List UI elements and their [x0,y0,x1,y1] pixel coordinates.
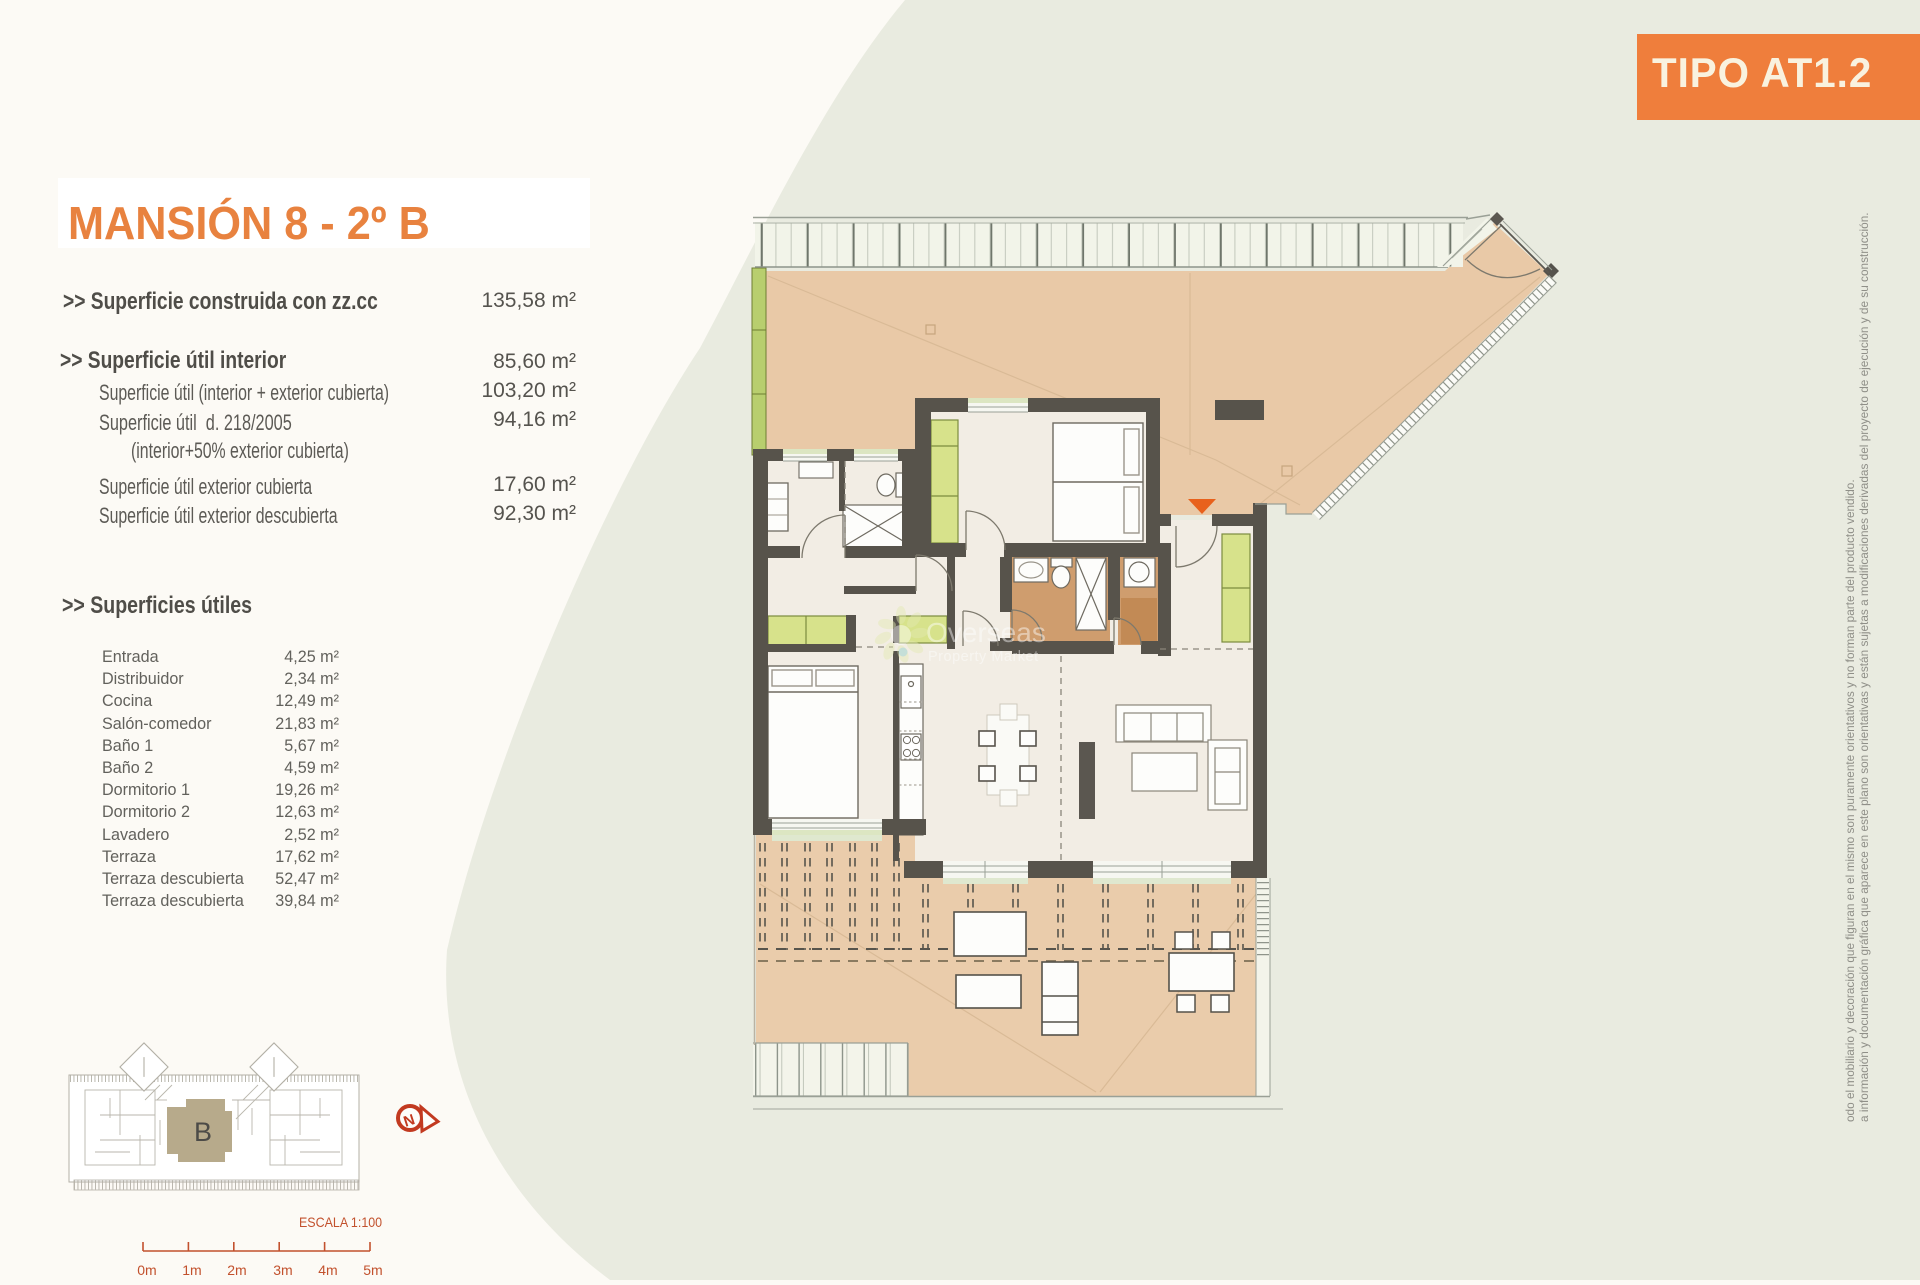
svg-text:Property Market: Property Market [928,649,1039,665]
svg-text:ESCALA 1:100: ESCALA 1:100 [299,1214,382,1230]
svg-text:B: B [194,1117,212,1147]
svg-text:2m: 2m [227,1262,246,1278]
svg-text:0m: 0m [137,1262,156,1278]
svg-text:4m: 4m [318,1262,337,1278]
svg-text:5m: 5m [363,1262,382,1278]
svg-text:1m: 1m [182,1262,201,1278]
svg-text:3m: 3m [273,1262,292,1278]
svg-text:Overseas: Overseas [926,617,1046,648]
